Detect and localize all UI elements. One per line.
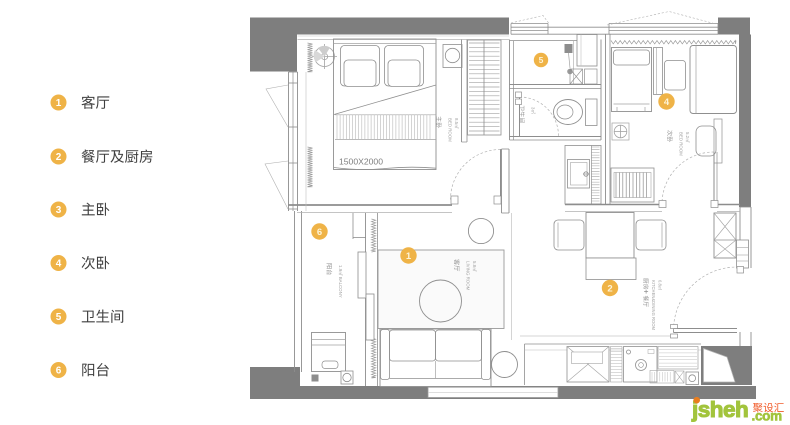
svg-text:2: 2 (56, 152, 62, 163)
svg-text:3: 3 (56, 205, 62, 216)
svg-text:4: 4 (664, 97, 670, 108)
svg-text:6.8㎡: 6.8㎡ (658, 280, 664, 291)
svg-text:1500X2000: 1500X2000 (339, 157, 383, 167)
svg-text:KITCHEN&DINING ROOM: KITCHEN&DINING ROOM (651, 280, 656, 331)
svg-text:2: 2 (607, 283, 612, 294)
svg-text:5.8㎡: 5.8㎡ (472, 261, 478, 272)
svg-text:5: 5 (539, 55, 544, 65)
svg-text:1: 1 (406, 251, 412, 262)
svg-text:1.9㎡ BALCONY: 1.9㎡ BALCONY (338, 265, 344, 298)
svg-text:8.5㎡: 8.5㎡ (454, 118, 460, 129)
svg-text:BED ROOM: BED ROOM (679, 132, 684, 156)
svg-text:BED ROOM: BED ROOM (448, 118, 453, 142)
svg-text:LIVING ROOM: LIVING ROOM (466, 261, 471, 291)
svg-text:4: 4 (56, 259, 62, 270)
svg-text:.com: .com (752, 409, 783, 424)
svg-text:1: 1 (56, 98, 62, 109)
svg-text:5.2㎡: 5.2㎡ (685, 132, 691, 143)
svg-text:6: 6 (56, 366, 62, 377)
svg-text:3㎡: 3㎡ (531, 107, 537, 114)
svg-text:6: 6 (317, 227, 322, 238)
svg-text:5: 5 (56, 312, 62, 323)
